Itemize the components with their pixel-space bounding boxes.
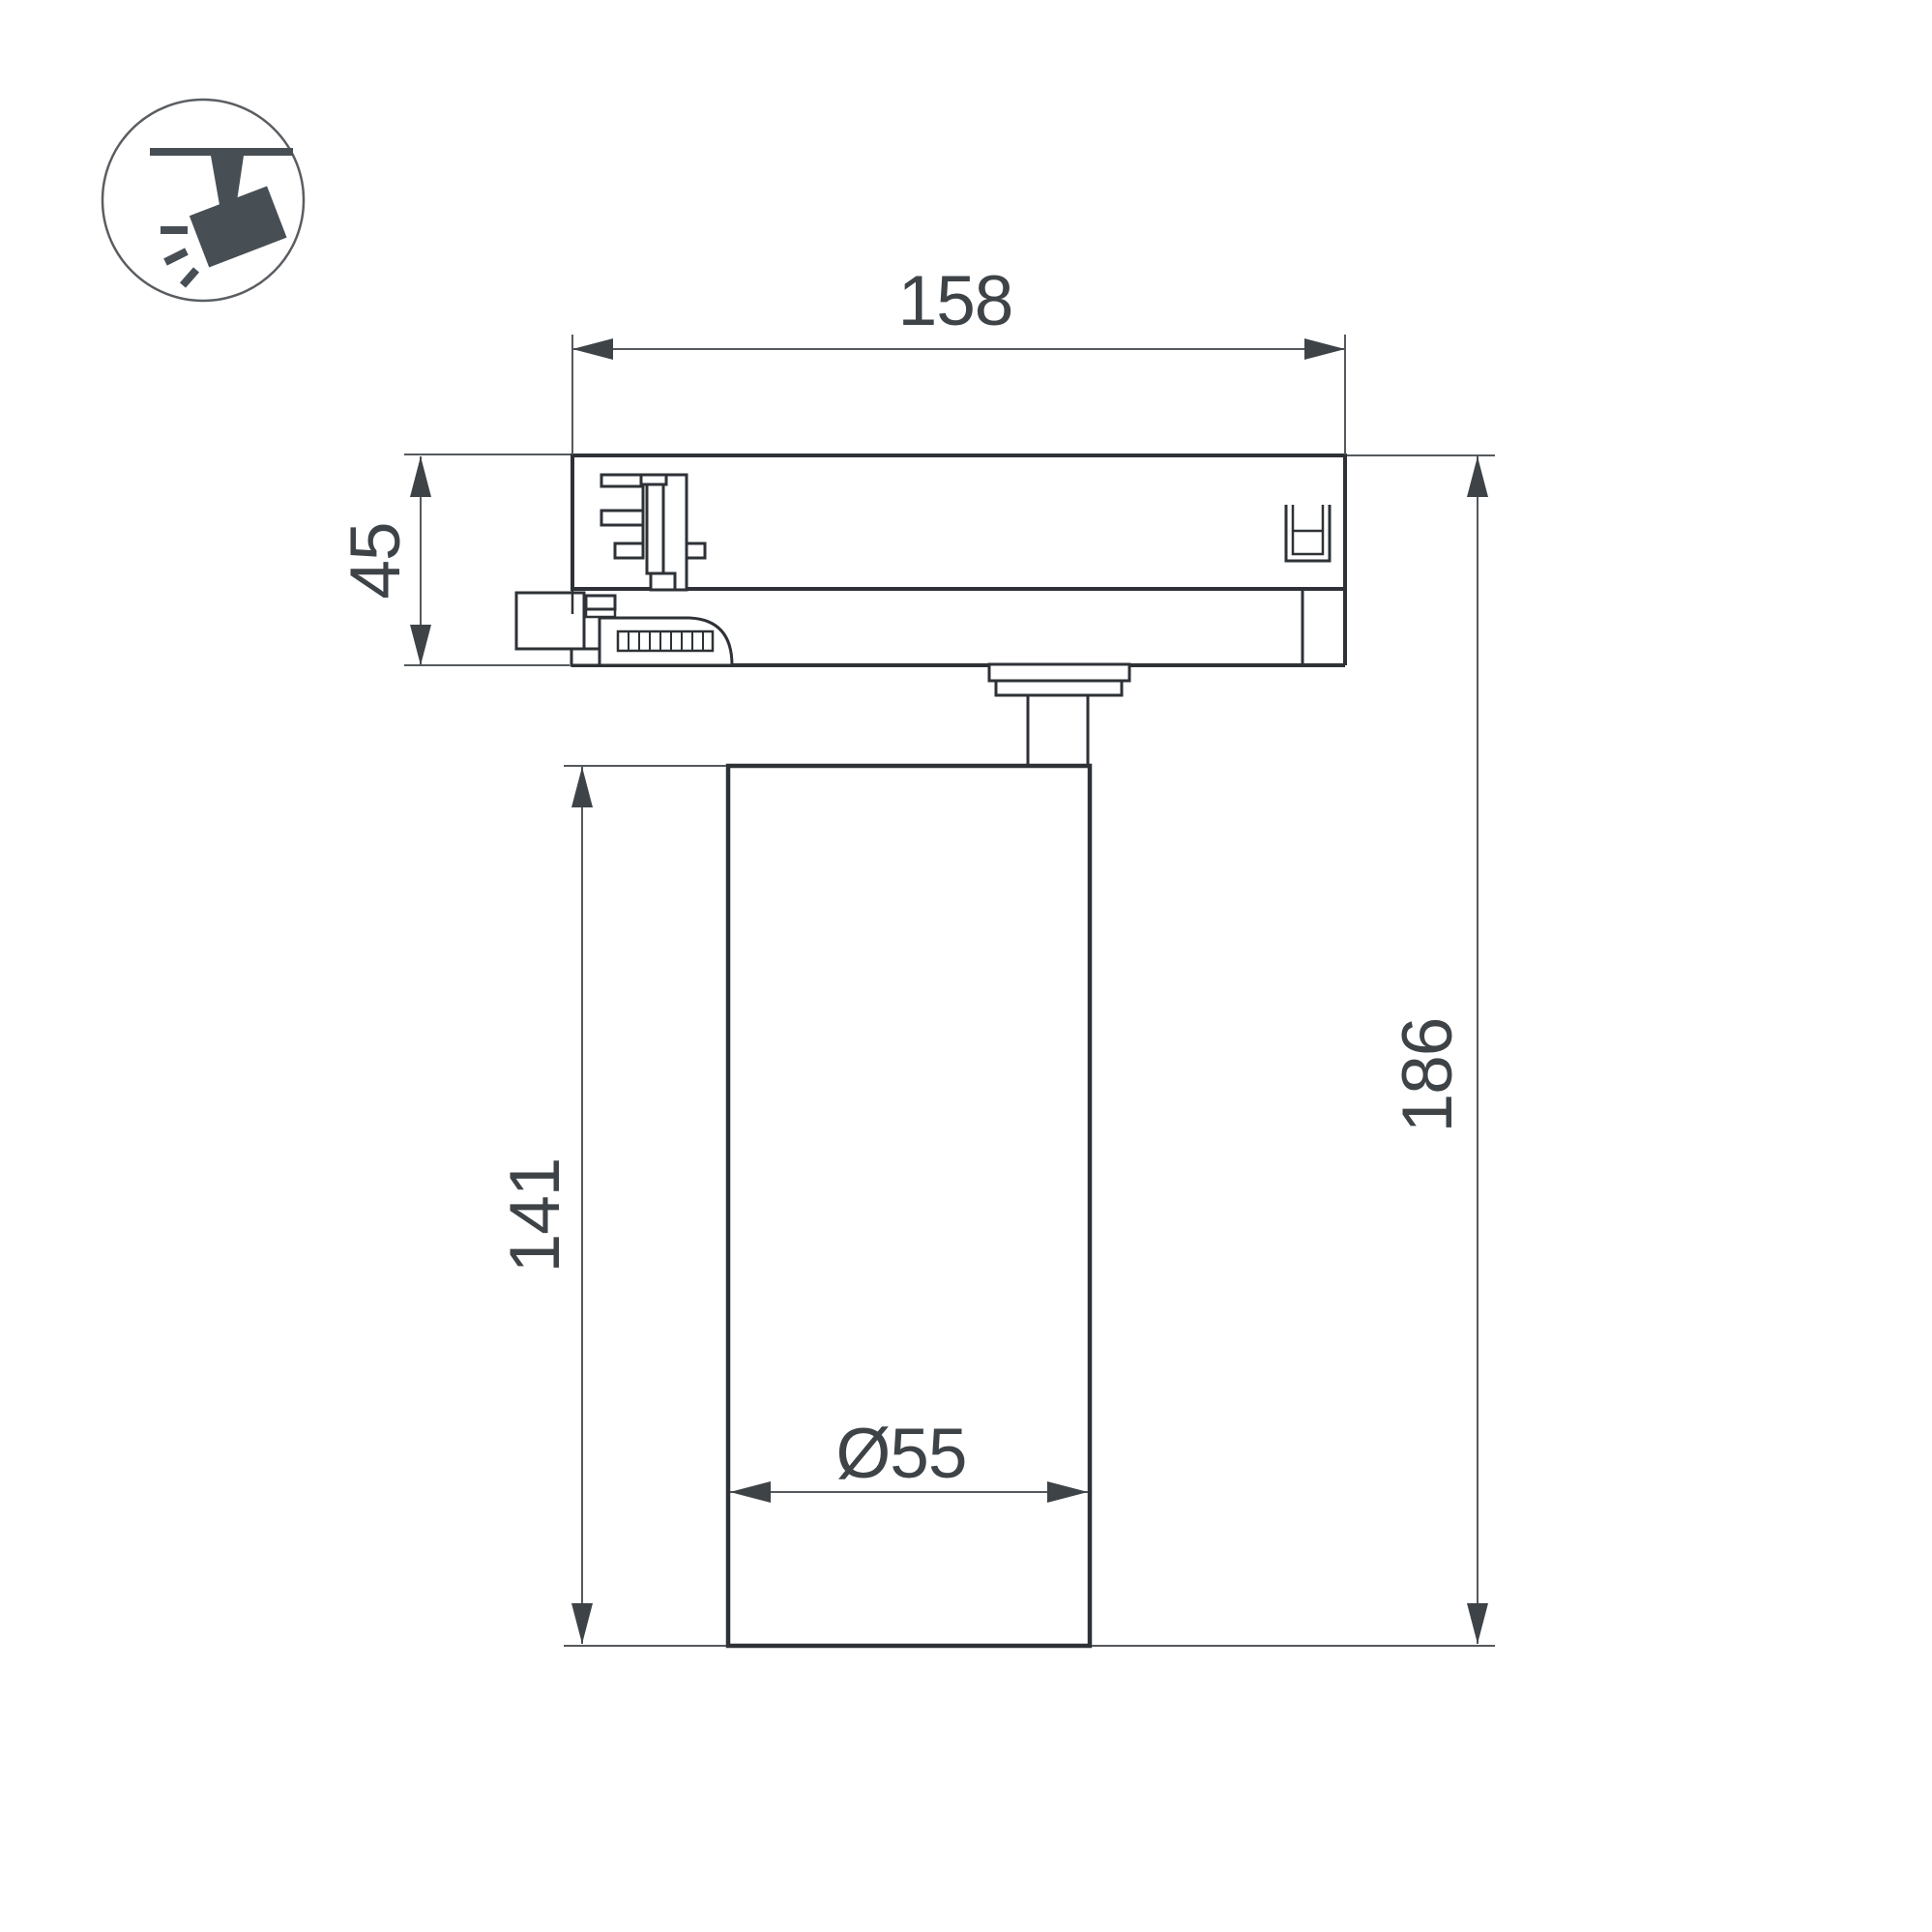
dimension-lamp-body-height: 141 bbox=[496, 766, 726, 1646]
swivel-mount bbox=[989, 664, 1129, 767]
icon-spotlight-head bbox=[190, 186, 287, 267]
contact-right-tab bbox=[687, 543, 705, 558]
dimension-label-diameter: Ø55 bbox=[836, 1415, 967, 1493]
mount-step-1 bbox=[989, 664, 1129, 681]
mount-stem bbox=[1028, 695, 1088, 767]
adapter-latch-step bbox=[571, 649, 600, 665]
adapter-upper-box bbox=[572, 455, 1345, 589]
dimension-track-adapter-width: 158 bbox=[572, 262, 1345, 454]
arrow-left-icon bbox=[572, 338, 613, 360]
latch-detail-block bbox=[586, 596, 615, 609]
dimension-label-width: 158 bbox=[898, 262, 1013, 340]
arrow-right-icon bbox=[1304, 338, 1345, 360]
arrow-up-icon bbox=[571, 767, 593, 807]
dimension-label-total-height: 186 bbox=[1389, 1018, 1467, 1133]
arrow-up-icon bbox=[410, 456, 431, 497]
contact-cap bbox=[641, 475, 666, 484]
drawing-canvas: 158 45 141 186 Ø55 bbox=[0, 0, 1932, 1932]
track-adapter-body bbox=[516, 455, 1345, 767]
contact-prong-top bbox=[601, 475, 643, 486]
arrow-down-icon bbox=[571, 1603, 593, 1644]
arrow-up-icon bbox=[1467, 456, 1488, 497]
adapter-latch-box bbox=[516, 593, 584, 649]
track-spotlight-icon bbox=[102, 100, 304, 301]
contact-rail bbox=[647, 484, 663, 573]
dimension-label-body-height: 141 bbox=[496, 1158, 574, 1273]
icon-circle-border bbox=[102, 100, 304, 301]
contact-foot bbox=[651, 573, 675, 590]
dimension-total-height: 186 bbox=[1092, 455, 1495, 1646]
arrow-down-icon bbox=[410, 625, 431, 665]
dimension-label-adapter-height: 45 bbox=[337, 522, 415, 599]
track-light-dimension-drawing: 158 45 141 186 Ø55 bbox=[0, 0, 1932, 1932]
icon-track-bar bbox=[150, 148, 293, 156]
mount-step-2 bbox=[996, 681, 1122, 695]
latch-detail-bar bbox=[586, 609, 615, 617]
lamp-cylinder-body bbox=[728, 766, 1090, 1646]
contact-prong-bottom bbox=[615, 543, 643, 558]
contact-prong-middle bbox=[601, 511, 643, 525]
arrow-down-icon bbox=[1467, 1603, 1488, 1644]
icon-light-rays bbox=[161, 230, 196, 285]
